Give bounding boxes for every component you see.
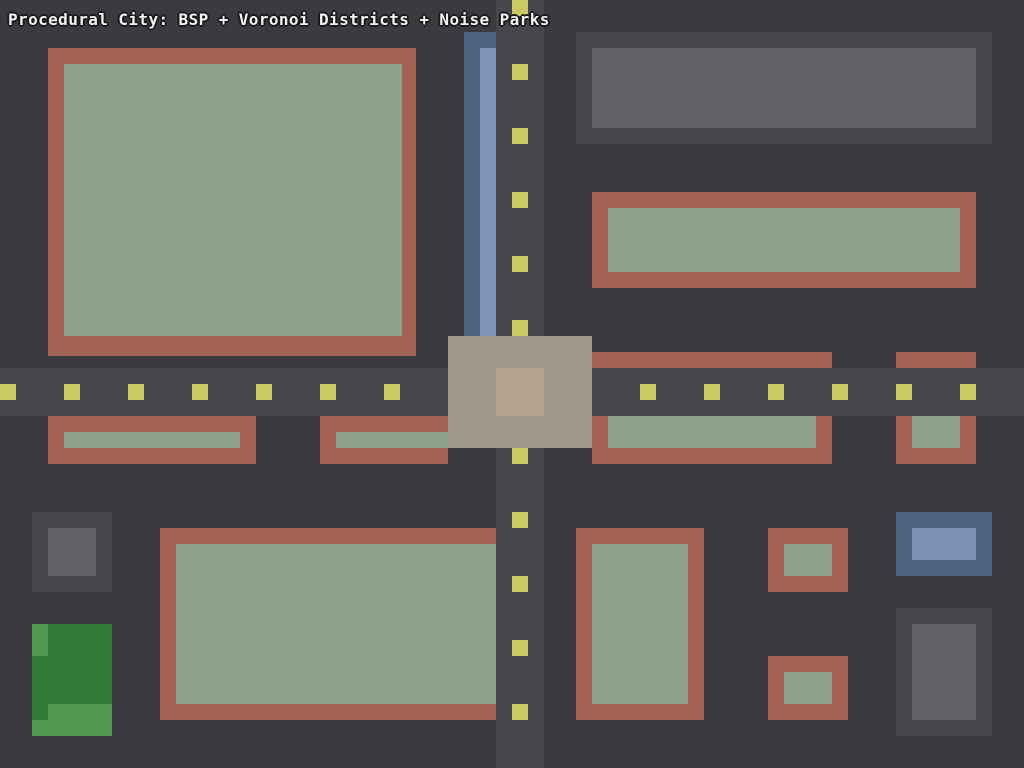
- lane-dash: [512, 192, 528, 208]
- map-title: Procedural City: BSP + Voronoi Districts…: [8, 10, 550, 29]
- lane-dash: [512, 256, 528, 272]
- lane-dash: [64, 384, 80, 400]
- park-patch-1: [32, 624, 48, 656]
- building-sw-gray-roof: [48, 528, 96, 576]
- lane-dash: [768, 384, 784, 400]
- building-se-gray-roof: [912, 624, 976, 720]
- lane-dash: [512, 448, 528, 464]
- building-se-blue-roof: [912, 528, 976, 560]
- lane-dash: [512, 512, 528, 528]
- building-south-c-roof: [784, 544, 832, 576]
- lane-dash: [512, 64, 528, 80]
- lane-dash: [128, 384, 144, 400]
- lane-dash: [512, 640, 528, 656]
- lane-dash: [832, 384, 848, 400]
- lane-dash: [320, 384, 336, 400]
- lane-dash: [192, 384, 208, 400]
- lane-dash: [960, 384, 976, 400]
- plaza-center: [496, 368, 544, 416]
- river-segment-light: [480, 48, 496, 336]
- building-midleft-a-roof: [64, 432, 240, 448]
- lane-dash: [0, 384, 16, 400]
- lane-dash: [512, 320, 528, 336]
- lane-dash: [640, 384, 656, 400]
- building-midleft-b-roof: [336, 432, 448, 448]
- building-south-b-roof: [592, 544, 688, 704]
- building-south-a-roof: [176, 544, 496, 704]
- building-ne-gray-roof: [592, 48, 976, 128]
- lane-dash: [896, 384, 912, 400]
- lane-dash: [512, 704, 528, 720]
- lane-dash: [704, 384, 720, 400]
- city-map-stage: Procedural City: BSP + Voronoi Districts…: [0, 0, 1024, 768]
- building-ne-brown-roof: [608, 208, 960, 272]
- lane-dash: [384, 384, 400, 400]
- lane-dash: [512, 576, 528, 592]
- building-nw-roof: [64, 64, 402, 336]
- park-patch-3: [32, 720, 48, 736]
- building-south-d-roof: [784, 672, 832, 704]
- park-patch-2: [48, 704, 112, 736]
- lane-dash: [512, 128, 528, 144]
- lane-dash: [256, 384, 272, 400]
